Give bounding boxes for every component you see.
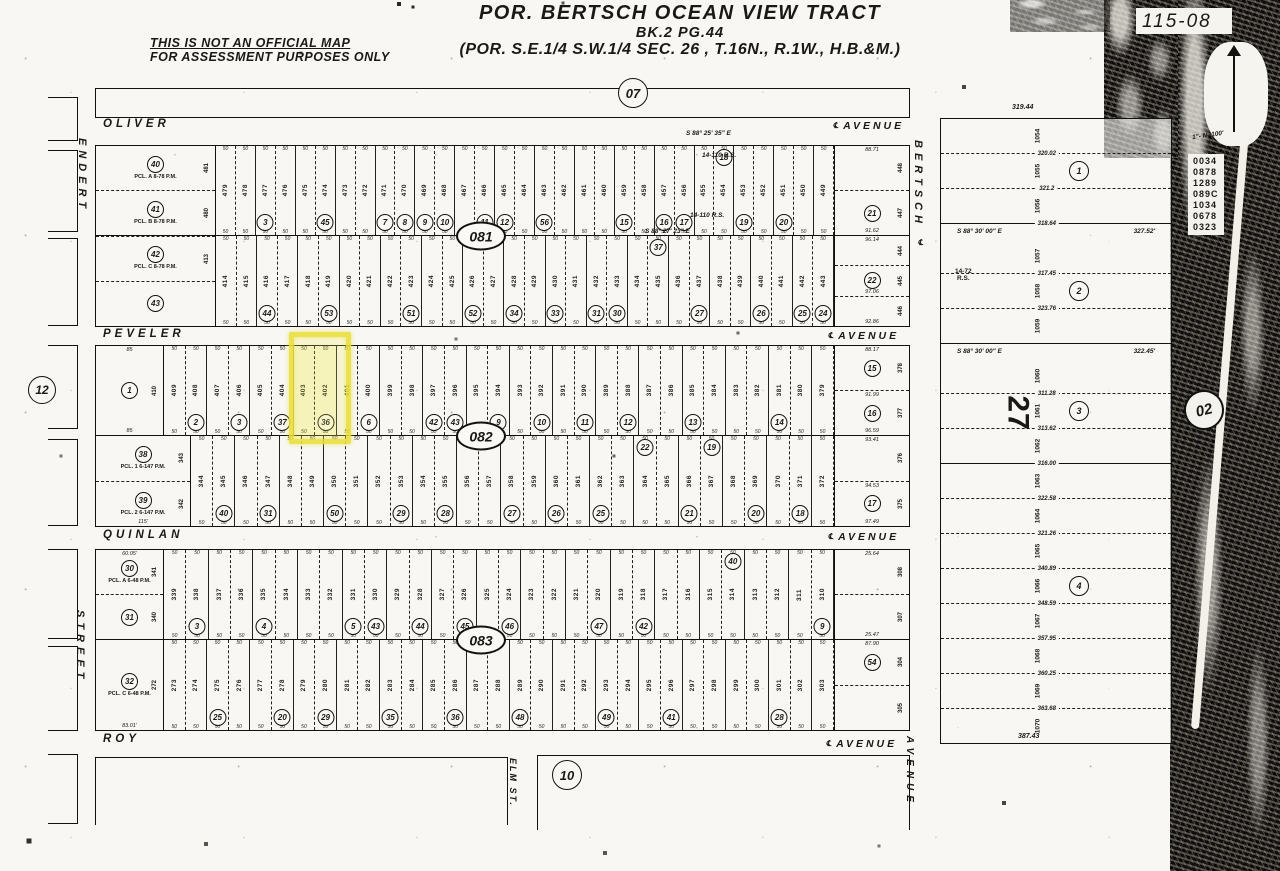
lot-number: 359 bbox=[531, 475, 538, 487]
street-roy-suffix: ℄AVENUE bbox=[826, 738, 897, 750]
lot-cell-294: 5029450 bbox=[618, 640, 640, 730]
lot-cell-386: 5038650 bbox=[661, 346, 683, 435]
block-082-label: 082 bbox=[456, 422, 506, 451]
lot-number: 469 bbox=[421, 184, 428, 196]
lot-number: 283 bbox=[387, 679, 394, 691]
lot-cell-327: 5032750 bbox=[432, 550, 454, 639]
parcel-number-circle: 7 bbox=[376, 214, 393, 231]
street-peveler-suffix: ℄AVENUE bbox=[828, 330, 899, 342]
lot-cell-289: 502895048 bbox=[510, 640, 532, 730]
east-parcel-strip-1060: 1060311.28 bbox=[941, 359, 1171, 394]
parcel-map-note: PCL. C 6-48 P.M. bbox=[108, 691, 151, 698]
lot-number: 351 bbox=[353, 475, 360, 487]
parcel-number-circle: 30 bbox=[609, 305, 626, 322]
street-quinlan: QUINLAN bbox=[103, 529, 183, 541]
lot-cell-382: 5038250 bbox=[747, 346, 769, 435]
parcel-number-circle: 19 bbox=[703, 439, 720, 456]
lot-number: 357 bbox=[486, 475, 493, 487]
lot-number: 441 bbox=[778, 275, 785, 287]
section-27-label: 27 bbox=[1001, 395, 1035, 430]
margin-number: 0878 bbox=[1193, 167, 1219, 178]
corner-parcel: 31340 bbox=[96, 594, 163, 639]
lot-number: 299 bbox=[733, 679, 740, 691]
lot-number: 312 bbox=[774, 588, 781, 600]
lot-cell-314: 503145040 bbox=[722, 550, 744, 639]
lot-cell-334: 5033450 bbox=[276, 550, 298, 639]
lot-number: 382 bbox=[754, 384, 761, 396]
block-082-row-north: 85141085 5040950504085025040750504065035… bbox=[96, 346, 909, 436]
lot-cell-299: 5029950 bbox=[726, 640, 748, 730]
lot-cell-388: 503885012 bbox=[618, 346, 640, 435]
lot-number: 379 bbox=[819, 384, 826, 396]
lot-cell-347: 503475031 bbox=[258, 436, 280, 526]
lot-cell-293: 502935049 bbox=[596, 640, 618, 730]
lot-cell-298: 5029850 bbox=[704, 640, 726, 730]
parcel-number-circle: 3 bbox=[231, 414, 248, 431]
parcel-number-circle: 35 bbox=[382, 709, 399, 726]
lot-number: 421 bbox=[366, 275, 373, 287]
lot-cell-381: 503815014 bbox=[769, 346, 791, 435]
lot-cell-310: 50310509 bbox=[812, 550, 834, 639]
lot-number: 303 bbox=[819, 679, 826, 691]
parcel-map-note: PCL. B 8-78 P.M. bbox=[134, 219, 177, 226]
parcel-number-circle: 25 bbox=[592, 505, 609, 522]
east-parcel-strip-1061: 10613313.62 bbox=[941, 394, 1171, 429]
lot-cells: 5033950503385035033750503365050335504503… bbox=[164, 550, 834, 639]
lot-number: 370 bbox=[775, 475, 782, 487]
lot-number: 407 bbox=[214, 384, 221, 396]
parcel-number-circle: 21 bbox=[864, 205, 881, 222]
lot-number: 376 bbox=[898, 453, 904, 463]
parcel-number-circle: 45 bbox=[317, 214, 334, 231]
lot-cell-277: 5027750 bbox=[250, 640, 272, 730]
lot-number: 375 bbox=[898, 499, 904, 509]
assessor-map-sheet: THIS IS NOT AN OFFICIAL MAP FOR ASSESSME… bbox=[0, 0, 1280, 871]
lot-number: 1067 bbox=[1034, 614, 1041, 628]
lot-number: 328 bbox=[417, 588, 424, 600]
title-book-page: BK.2 PG.44 bbox=[400, 25, 960, 41]
corner-parcel: 25.64308 bbox=[835, 550, 909, 594]
block-10-outline-east bbox=[537, 755, 910, 830]
lot-number: 277 bbox=[257, 679, 264, 691]
lot-cell-317: 5031750 bbox=[655, 550, 677, 639]
lot-number: 338 bbox=[193, 588, 200, 600]
lot-cell-362: 503625025 bbox=[590, 436, 612, 526]
lot-number: 361 bbox=[575, 475, 582, 487]
east-parcel-strip-1056: 1056318.64 bbox=[941, 189, 1171, 224]
lot-cell-363: 5036350 bbox=[612, 436, 634, 526]
east-parcel-strip-1070: 1070 bbox=[941, 709, 1171, 743]
parcel-number-circle: 38 bbox=[135, 446, 152, 463]
corner-parcel: 39PCL. 2 6-147 P.M.342115' bbox=[96, 481, 190, 527]
lot-cell-303: 5030350 bbox=[812, 640, 834, 730]
lot-number: 333 bbox=[305, 588, 312, 600]
lot-cell-286: 502865036 bbox=[445, 640, 467, 730]
lot-cell-479: 5047950 bbox=[216, 146, 236, 235]
corner-parcel: 93.41376 bbox=[835, 436, 909, 481]
street-endert: ENDERT bbox=[76, 138, 88, 213]
lot-cell-470: 50470508 bbox=[395, 146, 415, 235]
lot-number: 384 bbox=[711, 384, 718, 396]
lot-number: 371 bbox=[797, 475, 804, 487]
lot-number: 461 bbox=[581, 184, 588, 196]
lot-cell-322: 5032250 bbox=[544, 550, 566, 639]
lot-cell-420: 5042050 bbox=[340, 236, 361, 326]
lot-number: 1059 bbox=[1034, 319, 1041, 333]
lot-cell-278: 502785020 bbox=[272, 640, 294, 730]
lot-number: 422 bbox=[387, 275, 394, 287]
lot-cell-339: 5033950 bbox=[164, 550, 186, 639]
block-10-outline-west bbox=[95, 757, 508, 825]
parcel-number-circle: 15 bbox=[864, 360, 881, 377]
lot-cell-460: 5046050 bbox=[595, 146, 615, 235]
lot-cell-449: 5044950 bbox=[814, 146, 834, 235]
lot-number: 354 bbox=[420, 475, 427, 487]
lot-cell-463: 504635056 bbox=[535, 146, 555, 235]
parcel-map-note: PCL. C 8-78 P.M. bbox=[134, 264, 177, 271]
lot-number: 420 bbox=[346, 275, 353, 287]
east-parcel-strip-1063: 1063322.58 bbox=[941, 464, 1171, 499]
east-parcel-strip-1054: 1054320.02 bbox=[941, 119, 1171, 154]
parcel-number-circle: 56 bbox=[536, 214, 553, 231]
lot-number: 1065 bbox=[1034, 544, 1041, 558]
lot-cell-331: 50331505 bbox=[343, 550, 365, 639]
lot-cell-387: 5038750 bbox=[639, 346, 661, 435]
lot-number: 463 bbox=[541, 184, 548, 196]
lot-number: 477 bbox=[262, 184, 269, 196]
lot-number: 1069 bbox=[1034, 684, 1041, 698]
parcel-number-circle: 10 bbox=[533, 414, 550, 431]
lot-number: 425 bbox=[449, 275, 456, 287]
lot-number: 1070 bbox=[1034, 719, 1041, 733]
parcel-number-circle: 40 bbox=[724, 553, 741, 570]
corner-parcel: 40PCL. A 8-78 P.M.481 bbox=[96, 146, 215, 190]
lot-number: 440 bbox=[758, 275, 765, 287]
lot-number: 430 bbox=[552, 275, 559, 287]
lot-cell-434: 5043450 bbox=[628, 236, 649, 326]
lot-number: 293 bbox=[603, 679, 610, 691]
lot-number: 423 bbox=[408, 275, 415, 287]
lot-cell-349: 5034950 bbox=[302, 436, 324, 526]
lot-number: 448 bbox=[898, 163, 904, 173]
street-peveler: PEVELER bbox=[103, 328, 185, 340]
east-parcel-strip-1064: 1064321.26 bbox=[941, 499, 1171, 534]
parcel-number-circle: 27 bbox=[503, 505, 520, 522]
lot-number: 1066 bbox=[1034, 579, 1041, 593]
parcel-number-circle: 20 bbox=[775, 214, 792, 231]
margin-number: 0678 bbox=[1193, 211, 1219, 222]
lot-number: 408 bbox=[192, 384, 199, 396]
lot-number: 298 bbox=[711, 679, 718, 691]
lot-number: 337 bbox=[216, 588, 223, 600]
block-082: 85141085 5040950504085025040750504065035… bbox=[95, 345, 910, 527]
lot-cell-371: 503715018 bbox=[790, 436, 812, 526]
lot-cell-280: 502805029 bbox=[315, 640, 337, 730]
east-parcel-strip-1057: 1057317.45 bbox=[941, 239, 1171, 274]
block-083: 60.05'30PCL. A 6-48 P.M.34131340 5033950… bbox=[95, 549, 910, 731]
lot-number: 295 bbox=[646, 679, 653, 691]
lot-cell-284: 5028450 bbox=[402, 640, 424, 730]
lot-cell-358: 503585027 bbox=[501, 436, 523, 526]
lot-cell-409: 5040950 bbox=[164, 346, 186, 435]
lot-cell-424: 5042450 bbox=[422, 236, 443, 326]
parcel-number-circle: 18 bbox=[792, 505, 809, 522]
corner-parcel: 85141085 bbox=[96, 346, 163, 435]
lot-number: 459 bbox=[621, 184, 628, 196]
lot-cell-315: 5031550 bbox=[700, 550, 722, 639]
lot-cell-380: 5038050 bbox=[791, 346, 813, 435]
lot-number: 360 bbox=[553, 475, 560, 487]
lot-cell-462: 5046250 bbox=[555, 146, 575, 235]
block-07-number: 07 bbox=[618, 78, 648, 108]
lot-number: 415 bbox=[243, 275, 250, 287]
corner-parcel: 43 bbox=[96, 281, 215, 326]
parcel-number-circle: 1 bbox=[121, 382, 138, 399]
bearing-note: S 88° 25' 35" E bbox=[686, 130, 731, 137]
lot-cell-465: 504655012 bbox=[495, 146, 515, 235]
parcel-map-note: PCL. 1 6-147 P.M. bbox=[121, 464, 166, 471]
lot-cell-291: 5029150 bbox=[553, 640, 575, 730]
parcel-number-circle: 36 bbox=[447, 709, 464, 726]
lot-cell-316: 5031650 bbox=[678, 550, 700, 639]
east-parcel-strip-1067: 1067357.95 bbox=[941, 604, 1171, 639]
lot-cell-441: 5044150 bbox=[772, 236, 793, 326]
lot-number: 391 bbox=[560, 384, 567, 396]
east-tract-bottom-dimension: 387.43 bbox=[1018, 733, 1039, 740]
parcel-number-circle: 3 bbox=[1069, 401, 1089, 421]
lot-number: 287 bbox=[473, 679, 480, 691]
parcel-number-circle: 16 bbox=[864, 405, 881, 422]
bearing-row: S 88° 30' 00" E322.45' bbox=[941, 344, 1171, 359]
lot-number: 385 bbox=[689, 384, 696, 396]
lot-cell-323: 5032350 bbox=[521, 550, 543, 639]
east-parcel-strip-1069: 1069363.68 bbox=[941, 674, 1171, 709]
lot-cell-459: 504595015 bbox=[615, 146, 635, 235]
record-survey-note: 14-110 R.S. bbox=[702, 152, 736, 159]
east-parcel-strip-1065: 1065340.89 bbox=[941, 534, 1171, 569]
block-082-corner-lots: 38PCL. 1 6-147 P.M.34339PCL. 2 6-147 P.M… bbox=[96, 436, 191, 526]
margin-number: 089C bbox=[1193, 189, 1219, 200]
lot-number: 348 bbox=[287, 475, 294, 487]
lot-cell-438: 5043850 bbox=[710, 236, 731, 326]
lot-cell-385: 503855013 bbox=[683, 346, 705, 435]
corner-parcel: 38PCL. 1 6-147 P.M.343 bbox=[96, 436, 190, 481]
lot-number: 331 bbox=[350, 588, 357, 600]
block-083-row-north: 60.05'30PCL. A 6-48 P.M.34131340 5033950… bbox=[96, 550, 909, 640]
lot-cell-473: 5047350 bbox=[336, 146, 356, 235]
corner-parcel: 96.14444 bbox=[835, 236, 909, 265]
lot-cell-472: 5047250 bbox=[356, 146, 376, 235]
lot-cell-433: 504335030 bbox=[607, 236, 628, 326]
lot-cell-476: 5047650 bbox=[276, 146, 296, 235]
lot-number: 343 bbox=[179, 453, 185, 463]
lot-cell-419: 504195053 bbox=[319, 236, 340, 326]
lot-cell-383: 5038350 bbox=[726, 346, 748, 435]
lot-number: 428 bbox=[511, 275, 518, 287]
lot-number: 317 bbox=[662, 588, 669, 600]
lot-number: 297 bbox=[689, 679, 696, 691]
parcel-map-note: PCL. A 8-78 P.M. bbox=[134, 174, 176, 181]
east-parcel-strip-1068: 1068360.25 bbox=[941, 639, 1171, 674]
lot-cell-353: 503535029 bbox=[391, 436, 413, 526]
lot-number: 327 bbox=[439, 588, 446, 600]
lot-cell-393: 5039350 bbox=[510, 346, 532, 435]
lot-number: 413 bbox=[204, 254, 210, 264]
lot-number: 443 bbox=[820, 275, 827, 287]
lot-number: 446 bbox=[898, 306, 904, 316]
lot-number: 476 bbox=[282, 184, 289, 196]
lot-cells: 5027350502745050275502550276505027750502… bbox=[164, 640, 834, 730]
lot-number: 334 bbox=[283, 588, 290, 600]
parcel-number-circle: 54 bbox=[864, 654, 881, 671]
lot-number: 480 bbox=[204, 208, 210, 218]
lot-number: 435 bbox=[655, 275, 662, 287]
parcel-number-circle: 31 bbox=[588, 305, 605, 322]
lot-cell-348: 5034850 bbox=[280, 436, 302, 526]
lot-cell-400: 50400506 bbox=[358, 346, 380, 435]
lot-number: 378 bbox=[898, 363, 904, 373]
disclaimer: THIS IS NOT AN OFFICIAL MAP FOR ASSESSME… bbox=[150, 36, 390, 64]
lot-cell-478: 5047850 bbox=[236, 146, 256, 235]
lot-number: 380 bbox=[797, 384, 804, 396]
lot-number: 431 bbox=[572, 275, 579, 287]
lot-cell-394: 50394509 bbox=[488, 346, 510, 435]
parcel-map-note: PCL. 2 6-147 P.M. bbox=[121, 510, 166, 517]
street-bertsch-suffix: AVENUE bbox=[904, 736, 915, 807]
lot-cell-296: 502965041 bbox=[661, 640, 683, 730]
lot-number: 1061 bbox=[1034, 404, 1041, 418]
parcel-number-circle: 3 bbox=[257, 214, 274, 231]
block-12-number: 12 bbox=[28, 376, 56, 404]
lot-cell-344: 5034450 bbox=[191, 436, 213, 526]
lot-cell-345: 503455040 bbox=[213, 436, 235, 526]
lot-cell-429: 5042950 bbox=[525, 236, 546, 326]
north-arrow bbox=[1233, 54, 1235, 132]
lot-number: 305 bbox=[898, 703, 904, 713]
east-parcel-strip-1058: 10582323.76 bbox=[941, 274, 1171, 309]
lot-cell-453: 504535019 bbox=[734, 146, 754, 235]
lot-cell-288: 5028850 bbox=[488, 640, 510, 730]
lot-number: 341 bbox=[152, 567, 158, 577]
lot-cell-333: 5033350 bbox=[298, 550, 320, 639]
block-081-east-lots: 88.714482144791.62 bbox=[834, 146, 909, 235]
block-081-east-lots: 96.144442244597.0644692.86 bbox=[834, 236, 909, 326]
lot-cell-454: 504545018 bbox=[714, 146, 734, 235]
lot-number: 383 bbox=[733, 384, 740, 396]
lot-cell-321: 5032150 bbox=[566, 550, 588, 639]
lot-number: 284 bbox=[409, 679, 416, 691]
parcel-number-circle: 20 bbox=[747, 505, 764, 522]
parcel-map-note: PCL. A 6-48 P.M. bbox=[108, 578, 150, 585]
parcel-number-circle: 28 bbox=[771, 709, 788, 726]
parcel-number-circle: 10 bbox=[436, 214, 453, 231]
margin-number: 1289 bbox=[1193, 178, 1219, 189]
centerline-icon: ℄ bbox=[828, 331, 833, 340]
lot-cells: 5047950504785050477503504765050475505047… bbox=[216, 146, 834, 235]
lot-cell-273: 5027350 bbox=[164, 640, 186, 730]
lot-cell-311: 5031150 bbox=[789, 550, 811, 639]
corner-parcel: 60.05'30PCL. A 6-48 P.M.341 bbox=[96, 550, 163, 594]
lot-number: 1055 bbox=[1034, 164, 1041, 178]
lot-cell-313: 5031350 bbox=[745, 550, 767, 639]
lot-cell-279: 5027950 bbox=[294, 640, 316, 730]
lot-cell-391: 5039150 bbox=[553, 346, 575, 435]
lot-number: 387 bbox=[646, 384, 653, 396]
lot-cell-283: 502835035 bbox=[380, 640, 402, 730]
lot-cell-399: 5039950 bbox=[380, 346, 402, 435]
lot-cell-364: 503645022 bbox=[634, 436, 656, 526]
parcel-number-circle: 53 bbox=[320, 305, 337, 322]
parcel-number-circle: 22 bbox=[637, 439, 654, 456]
lot-number: 470 bbox=[401, 184, 408, 196]
lot-number: 467 bbox=[461, 184, 468, 196]
lot-number: 332 bbox=[327, 588, 334, 600]
lot-cell-355: 503555028 bbox=[435, 436, 457, 526]
centerline-icon: ℄ bbox=[833, 121, 838, 130]
parcel-number-circle: 40 bbox=[147, 156, 164, 173]
parcel-number-circle: 48 bbox=[512, 709, 529, 726]
lot-number: 451 bbox=[780, 184, 787, 196]
block-07-outline bbox=[95, 88, 910, 118]
lot-number: 324 bbox=[506, 588, 513, 600]
lot-number: 419 bbox=[325, 275, 332, 287]
lot-number: 1063 bbox=[1034, 474, 1041, 488]
parcel-number-circle: 26 bbox=[548, 505, 565, 522]
lot-number: 323 bbox=[528, 588, 535, 600]
lot-number: 436 bbox=[675, 275, 682, 287]
lot-number: 342 bbox=[179, 499, 185, 509]
lot-cell-350: 503505050 bbox=[324, 436, 346, 526]
lot-number: 369 bbox=[752, 475, 759, 487]
lot-cell-392: 503925010 bbox=[531, 346, 553, 435]
lot-cell-367: 503675019 bbox=[701, 436, 723, 526]
corner-parcel: 305 bbox=[835, 685, 909, 731]
lot-number: 372 bbox=[819, 475, 826, 487]
lot-cell-422: 5042250 bbox=[381, 236, 402, 326]
lot-cell-431: 5043150 bbox=[566, 236, 587, 326]
block-083-row-south: 32PCL. C 6-48 P.M.27283.01' 502735050274… bbox=[96, 640, 909, 730]
lot-number: 426 bbox=[469, 275, 476, 287]
lot-cell-456: 504565017 bbox=[675, 146, 695, 235]
record-survey-note: 14-72 R.S. bbox=[955, 268, 972, 282]
parcel-number-circle: 29 bbox=[393, 505, 410, 522]
lot-cells: 5040950504085025040750504065035040550504… bbox=[164, 346, 834, 435]
lot-number: 377 bbox=[898, 408, 904, 418]
margin-number: 0034 bbox=[1193, 156, 1219, 167]
lot-cell-338: 50338503 bbox=[186, 550, 208, 639]
lot-cell-464: 5046450 bbox=[515, 146, 535, 235]
lot-cell-335: 50335504 bbox=[253, 550, 275, 639]
lot-cell-372: 5037250 bbox=[812, 436, 834, 526]
lot-cell-351: 5035150 bbox=[346, 436, 368, 526]
lot-cell-451: 504515020 bbox=[774, 146, 794, 235]
lot-number: 350 bbox=[331, 475, 338, 487]
lot-number: 454 bbox=[720, 184, 727, 196]
lot-number: 290 bbox=[538, 679, 545, 691]
parcel-number-circle: 41 bbox=[663, 709, 680, 726]
lot-number: 396 bbox=[452, 384, 459, 396]
street-bracket bbox=[48, 238, 78, 326]
lot-number: 344 bbox=[198, 475, 205, 487]
parcel-number-circle: 43 bbox=[367, 618, 384, 635]
lot-number: 1056 bbox=[1034, 199, 1041, 213]
lot-number: 336 bbox=[238, 588, 245, 600]
parcel-number-circle: 2 bbox=[1069, 281, 1089, 301]
lot-number: 434 bbox=[634, 275, 641, 287]
lot-cell-452: 5045250 bbox=[754, 146, 774, 235]
block-082-row-south: 38PCL. 1 6-147 P.M.34339PCL. 2 6-147 P.M… bbox=[96, 436, 909, 526]
lot-number: 278 bbox=[279, 679, 286, 691]
